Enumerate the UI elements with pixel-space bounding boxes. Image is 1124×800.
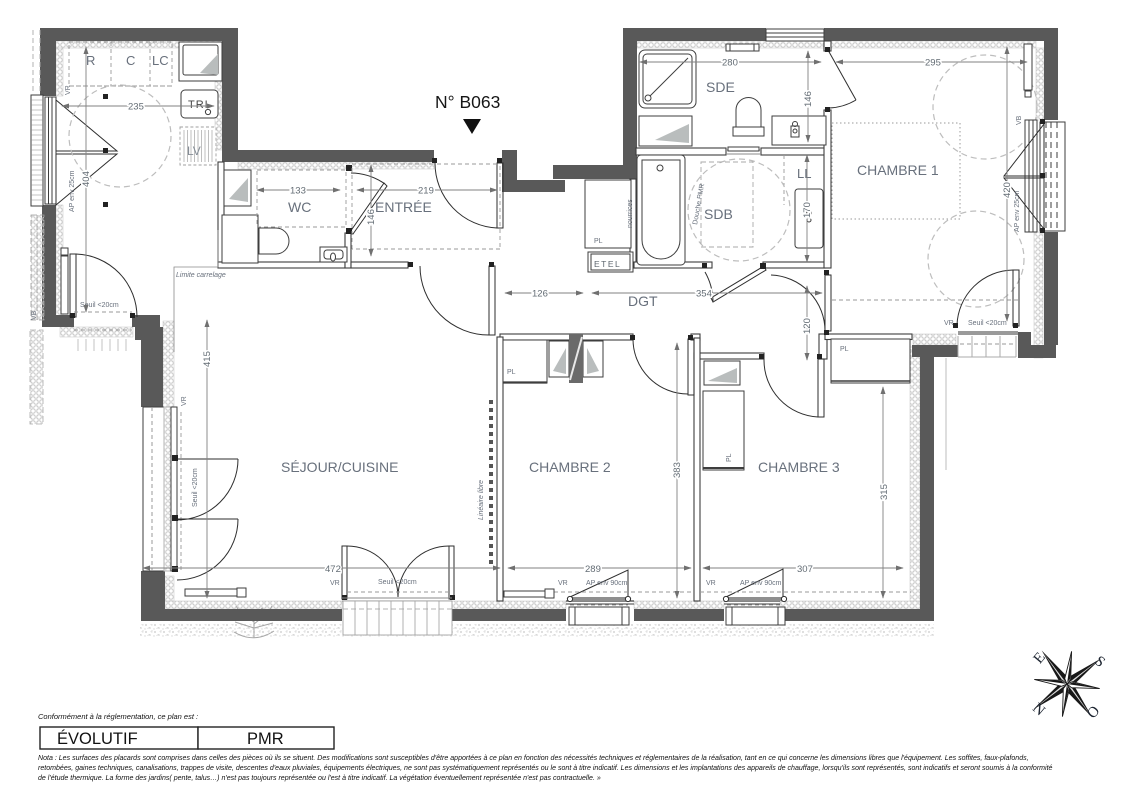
svg-text:AP env 25cm: AP env 25cm <box>69 170 76 212</box>
svg-text:DGT: DGT <box>628 293 658 309</box>
svg-text:PMR: PMR <box>247 730 284 748</box>
svg-text:LV: LV <box>187 144 201 158</box>
svg-text:133: 133 <box>290 186 306 197</box>
svg-text:LL: LL <box>797 166 811 181</box>
svg-text:CHAMBRE 2: CHAMBRE 2 <box>529 459 611 475</box>
svg-text:146: 146 <box>803 91 814 107</box>
svg-text:AP env 90cm: AP env 90cm <box>740 580 782 587</box>
svg-text:307: 307 <box>797 564 813 575</box>
svg-text:ÉVOLUTIF: ÉVOLUTIF <box>57 729 138 748</box>
svg-text:Seuil <20cm: Seuil <20cm <box>378 579 417 586</box>
svg-text:SÉJOUR/CUISINE: SÉJOUR/CUISINE <box>281 459 398 475</box>
svg-text:WC: WC <box>288 199 311 215</box>
svg-text:PL: PL <box>840 346 849 353</box>
svg-text:354: 354 <box>696 289 712 300</box>
svg-text:Nota : Les surfaces des placar: Nota : Les surfaces des placards sont co… <box>38 755 1029 762</box>
svg-text:VR: VR <box>944 320 954 327</box>
svg-text:C: C <box>126 53 135 68</box>
svg-text:CHAMBRE 3: CHAMBRE 3 <box>758 459 840 475</box>
svg-text:VB: VB <box>31 310 38 320</box>
svg-text:LC: LC <box>152 53 169 68</box>
svg-text:219: 219 <box>418 186 434 197</box>
svg-text:170: 170 <box>802 202 813 218</box>
svg-text:PL: PL <box>507 369 516 376</box>
svg-text:Limite carrelage: Limite carrelage <box>176 272 226 279</box>
svg-text:de l'étude thermique. La forme: de l'étude thermique. La forme des jardi… <box>38 775 601 782</box>
svg-text:295: 295 <box>925 58 941 69</box>
svg-text:Seuil <20cm: Seuil <20cm <box>968 320 1007 327</box>
svg-text:R: R <box>86 53 95 68</box>
svg-text:retombées, gaines techniques,: retombées, gaines techniques, canalisati… <box>38 765 1053 772</box>
svg-text:Linéaire libre: Linéaire libre <box>478 480 485 520</box>
svg-text:404: 404 <box>81 171 92 187</box>
svg-text:280: 280 <box>722 58 738 69</box>
svg-text:SDB: SDB <box>704 206 733 222</box>
svg-text:AP env 90cm: AP env 90cm <box>586 580 628 587</box>
svg-text:289: 289 <box>585 564 601 575</box>
svg-text:nourrices: nourrices <box>627 199 634 228</box>
svg-text:SDE: SDE <box>706 79 735 95</box>
svg-text:N° B063: N° B063 <box>435 92 500 112</box>
svg-text:PL: PL <box>726 453 733 462</box>
svg-text:126: 126 <box>532 289 548 300</box>
svg-text:AP env 25cm: AP env 25cm <box>1014 190 1021 232</box>
svg-text:VR: VR <box>706 580 716 587</box>
svg-text:Seuil <20cm: Seuil <20cm <box>192 468 199 507</box>
svg-text:ETEL: ETEL <box>594 259 621 269</box>
svg-text:VR: VR <box>558 580 568 587</box>
svg-text:383: 383 <box>672 462 683 478</box>
svg-text:ENTRÉE: ENTRÉE <box>375 199 432 215</box>
svg-text:VR: VR <box>330 580 340 587</box>
svg-text:420: 420 <box>1002 182 1013 198</box>
svg-text:VB: VB <box>1016 115 1023 125</box>
svg-text:TRI: TRI <box>188 99 209 111</box>
svg-text:CHAMBRE 1: CHAMBRE 1 <box>857 162 939 178</box>
svg-text:PL: PL <box>594 238 603 245</box>
svg-text:415: 415 <box>202 351 213 367</box>
svg-text:VR: VR <box>65 85 72 95</box>
svg-text:146: 146 <box>366 209 377 225</box>
svg-text:235: 235 <box>128 102 144 113</box>
svg-text:315: 315 <box>879 484 890 500</box>
svg-text:120: 120 <box>802 318 813 334</box>
svg-text:VR: VR <box>181 396 188 406</box>
svg-text:472: 472 <box>325 564 341 575</box>
svg-text:Conformément à la réglementati: Conformément à la réglementation, ce pla… <box>38 712 198 721</box>
